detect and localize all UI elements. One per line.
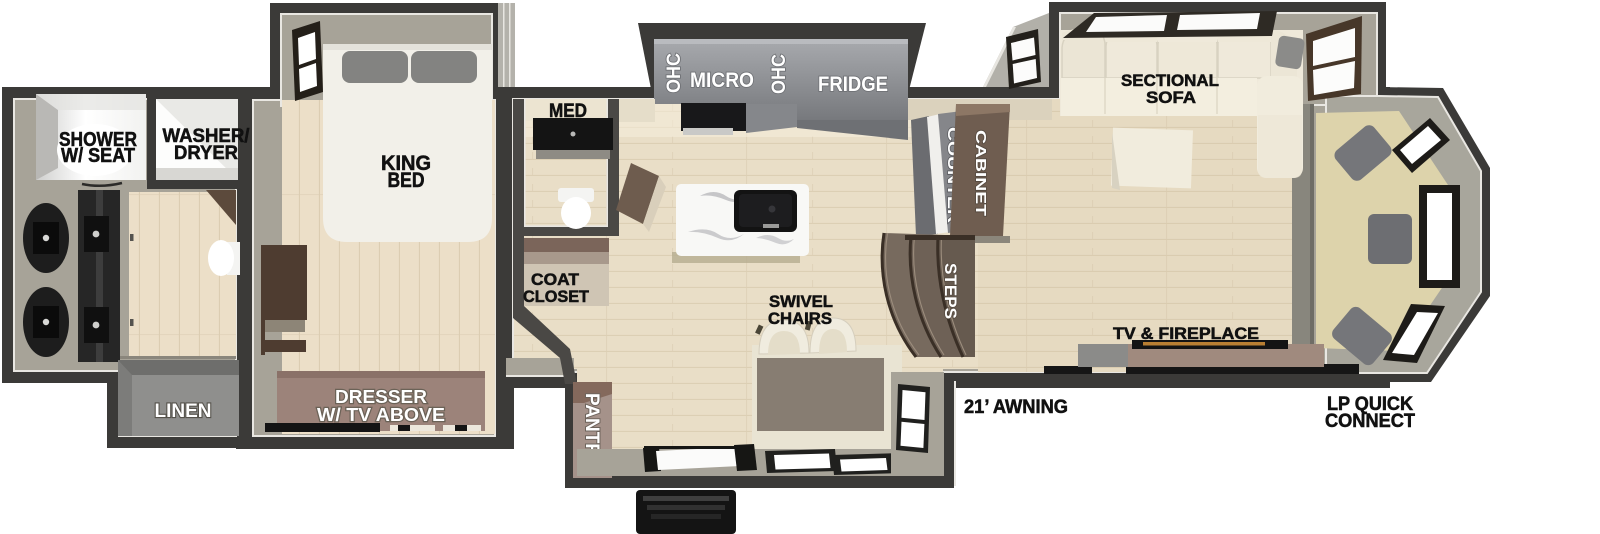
svg-text:MICRO: MICRO [690,69,754,92]
svg-text:TV & FIREPLACE: TV & FIREPLACE [1113,324,1259,343]
svg-text:W/ SEAT: W/ SEAT [61,145,135,167]
svg-text:CABINET: CABINET [972,130,989,216]
svg-text:W/ TV ABOVE: W/ TV ABOVE [317,405,445,425]
svg-text:BED: BED [388,169,425,192]
svg-text:DRESSER: DRESSER [335,387,427,407]
svg-text:OHC: OHC [664,53,685,93]
svg-text:LINEN: LINEN [155,401,212,422]
svg-text:SOFA: SOFA [1146,88,1196,107]
svg-text:CHAIRS: CHAIRS [768,309,832,328]
svg-text:CONNECT: CONNECT [1325,411,1415,432]
svg-text:CLOSET: CLOSET [523,287,590,306]
svg-text:DRYER: DRYER [174,143,238,164]
svg-text:STEPS: STEPS [941,263,960,319]
svg-text:FRIDGE: FRIDGE [818,73,888,96]
svg-text:21’ AWNING: 21’ AWNING [964,397,1068,418]
svg-text:MED: MED [549,101,587,122]
svg-text:OHC: OHC [769,54,790,94]
